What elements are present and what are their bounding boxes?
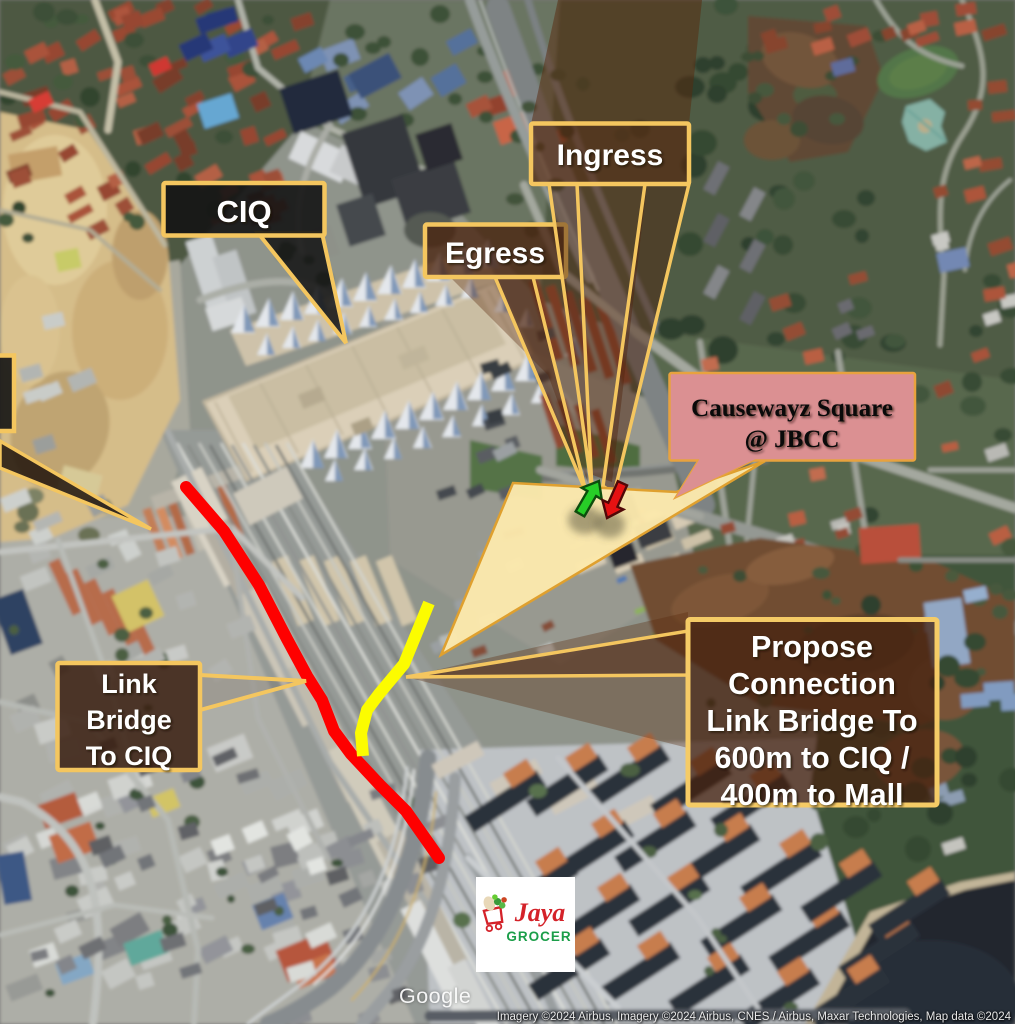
svg-text:Google: Google — [399, 984, 471, 1008]
svg-text:Imagery ©2024 Airbus, Imagery: Imagery ©2024 Airbus, Imagery ©2024 Airb… — [497, 1011, 1012, 1023]
svg-text:Link: Link — [101, 669, 157, 699]
svg-text:Connection: Connection — [728, 667, 896, 701]
svg-text:Causewayz Square: Causewayz Square — [691, 395, 893, 422]
svg-text:@ JBCC: @ JBCC — [745, 426, 840, 453]
svg-text:Link Bridge To: Link Bridge To — [706, 704, 917, 738]
svg-text:GROCER: GROCER — [506, 929, 571, 944]
svg-text:Bridge: Bridge — [86, 705, 172, 735]
svg-text:Jaya: Jaya — [514, 898, 566, 927]
svg-text:Egress: Egress — [445, 237, 545, 270]
svg-text:Ingress: Ingress — [557, 139, 664, 172]
svg-text:400m to Mall: 400m to Mall — [720, 778, 903, 812]
svg-text:Propose: Propose — [751, 630, 873, 664]
svg-text:600m to CIQ /: 600m to CIQ / — [715, 741, 910, 775]
svg-text:To CIQ: To CIQ — [86, 741, 172, 771]
svg-text:CIQ: CIQ — [216, 194, 271, 229]
